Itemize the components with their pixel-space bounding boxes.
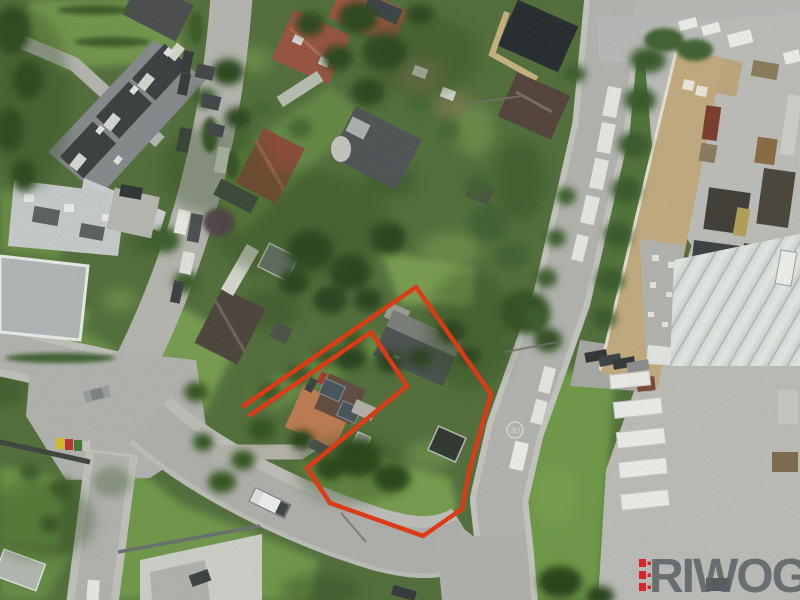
svg-text:RIWOG: RIWOG [649, 550, 800, 600]
